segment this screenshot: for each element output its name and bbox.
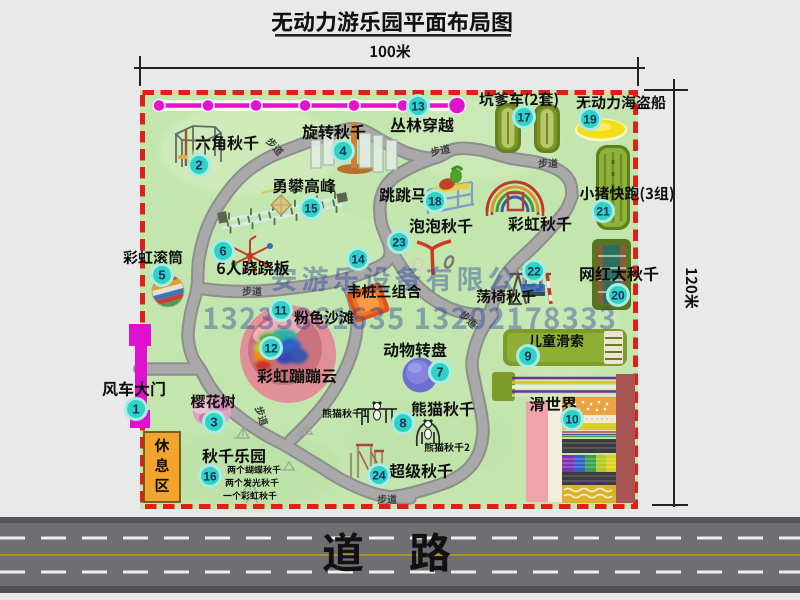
svg-text:9: 9 [524,349,531,364]
svg-text:18: 18 [428,195,442,209]
svg-text:10: 10 [565,413,579,427]
svg-text:5: 5 [158,268,165,283]
svg-text:16: 16 [203,470,217,484]
svg-text:1: 1 [132,402,139,417]
svg-text:21: 21 [596,205,610,219]
svg-text:14: 14 [351,253,365,267]
svg-text:13: 13 [411,100,425,114]
svg-text:17: 17 [517,111,531,125]
svg-text:8: 8 [399,416,406,431]
svg-text:3: 3 [210,415,217,430]
svg-text:4: 4 [339,144,347,159]
svg-text:19: 19 [583,113,597,127]
svg-text:15: 15 [304,202,318,216]
svg-text:11: 11 [275,304,288,318]
svg-text:22: 22 [527,265,541,279]
svg-text:23: 23 [392,236,406,250]
svg-text:24: 24 [372,469,386,483]
svg-text:2: 2 [195,158,202,173]
svg-text:20: 20 [611,289,625,303]
svg-text:7: 7 [436,365,443,380]
svg-text:6: 6 [219,244,226,259]
svg-text:12: 12 [264,342,278,356]
